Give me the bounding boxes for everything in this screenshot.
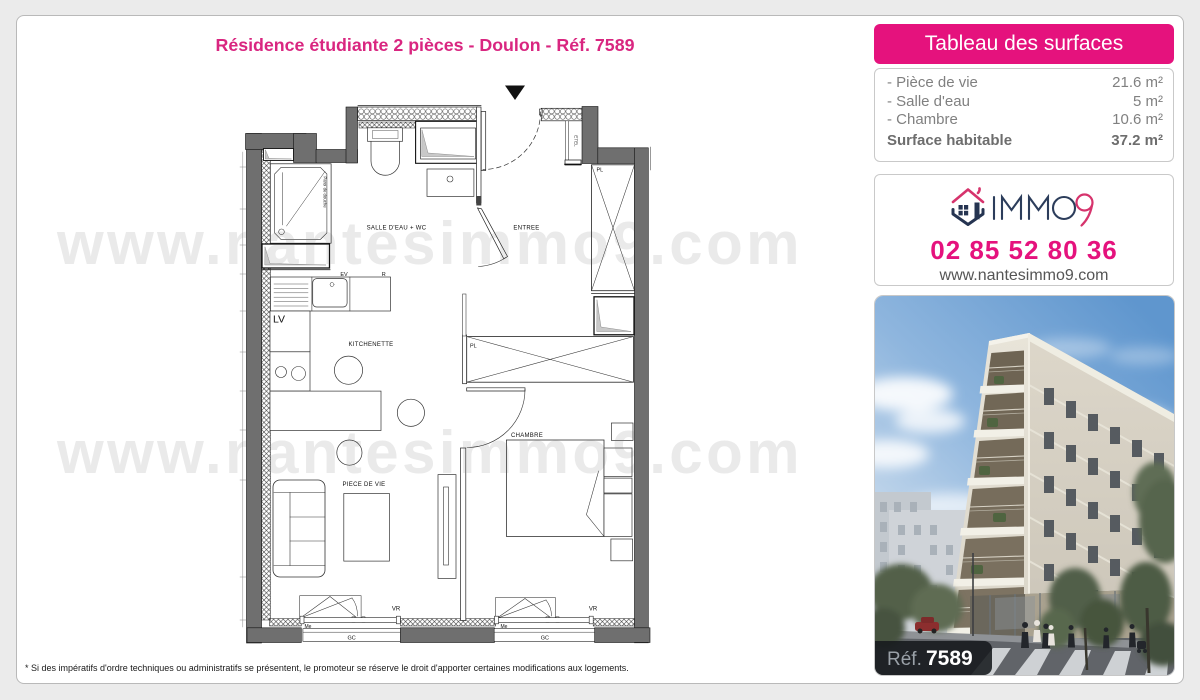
svg-text:Paroi de douche: Paroi de douche [322, 176, 327, 208]
svg-text:VR: VR [392, 607, 401, 613]
svg-text:GC: GC [347, 636, 355, 642]
svg-text:PL: PL [597, 168, 604, 174]
svg-text:Me: Me [501, 624, 508, 630]
svg-text:KITCHENETTE: KITCHENETTE [349, 342, 394, 348]
svg-text:ETEL: ETEL [574, 135, 579, 147]
svg-text:Me: Me [305, 624, 312, 630]
svg-text:PL: PL [470, 344, 477, 350]
svg-text:GC: GC [541, 636, 549, 642]
svg-text:LV: LV [273, 314, 285, 326]
svg-text:VR: VR [589, 607, 598, 613]
svg-text:Réf.: Réf. [887, 649, 922, 670]
svg-text:7589: 7589 [926, 647, 973, 670]
